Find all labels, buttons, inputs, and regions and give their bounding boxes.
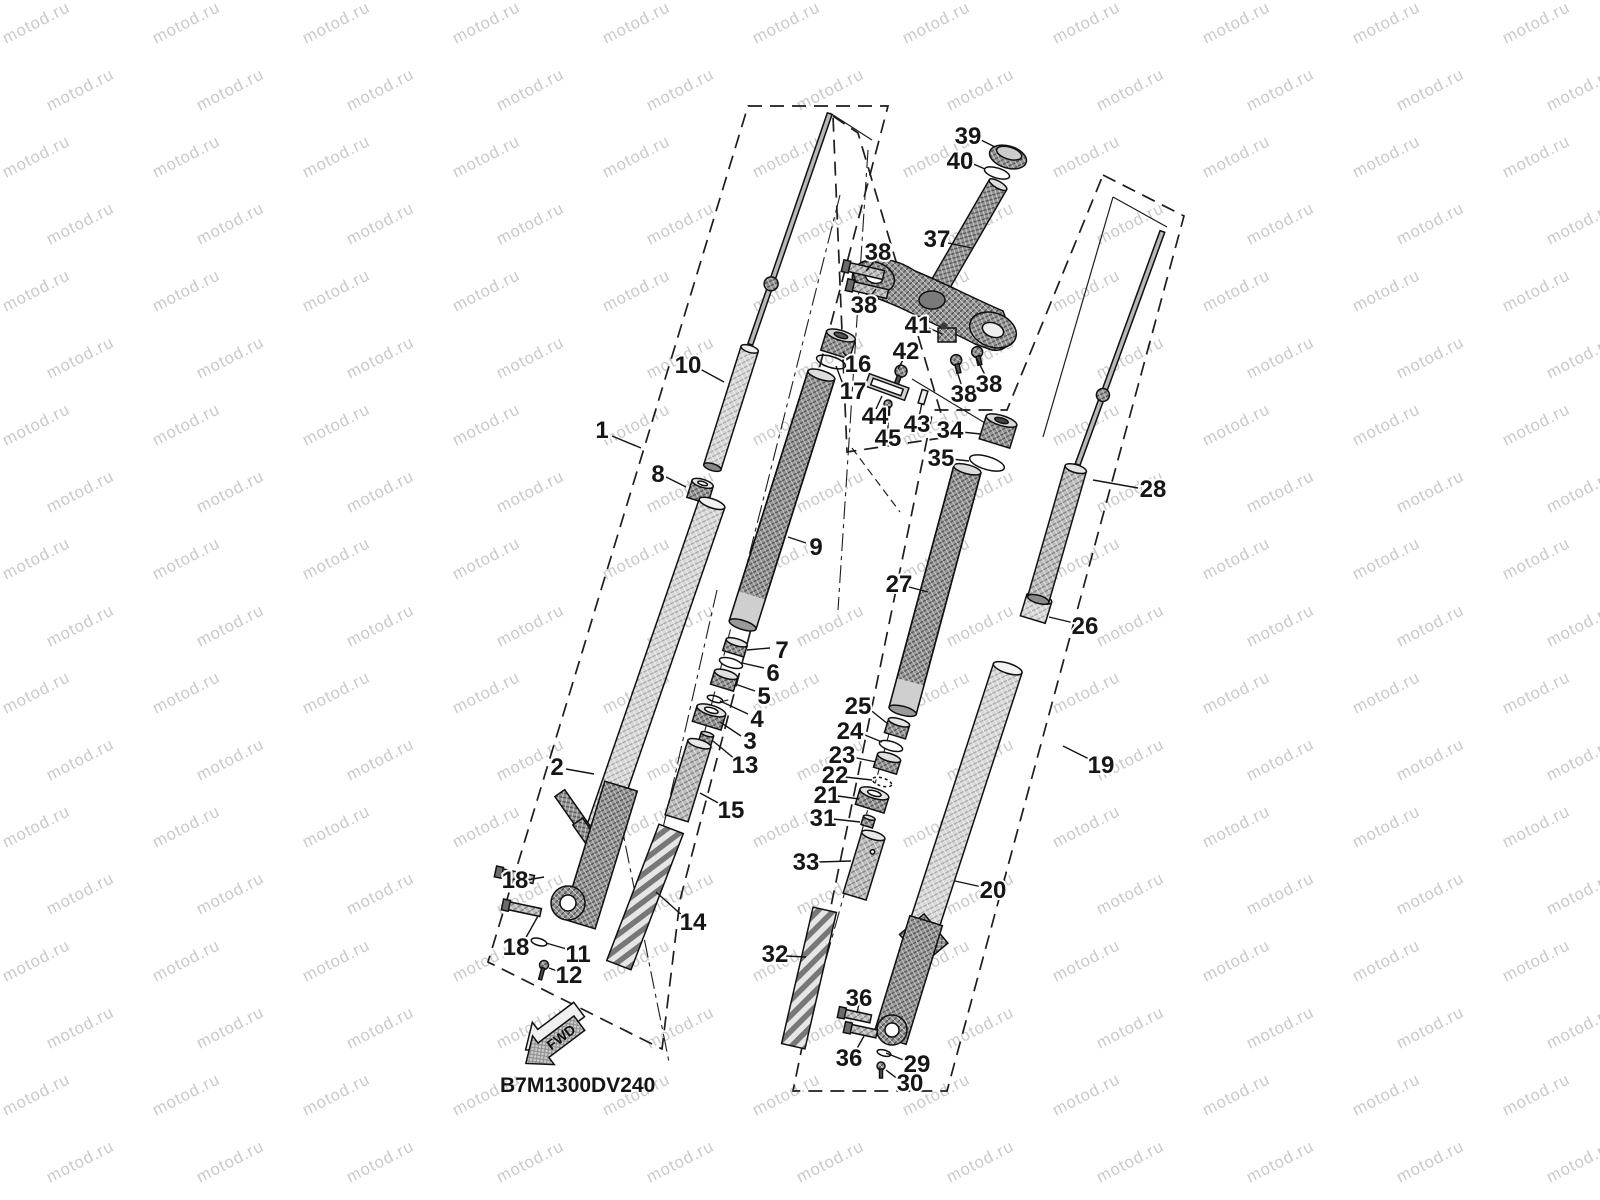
callout-7: 7 — [775, 637, 788, 664]
callout-36: 36 — [846, 985, 873, 1012]
callout-4: 4 — [750, 706, 764, 733]
callout-24: 24 — [837, 718, 864, 745]
callout-31: 31 — [810, 805, 837, 832]
callout-38: 38 — [851, 292, 878, 319]
callout-15: 15 — [718, 797, 745, 824]
callout-42: 42 — [893, 338, 920, 365]
callout-38: 38 — [951, 381, 978, 408]
callout-6: 6 — [766, 660, 779, 687]
fork-exploded-diagram: motod.ru motod.ru — [0, 0, 1600, 1200]
callout-14: 14 — [680, 909, 707, 936]
page: motod.ru motod.ru — [0, 0, 1600, 1200]
callout-2: 2 — [550, 754, 563, 781]
callout-45: 45 — [875, 425, 902, 452]
callout-36: 36 — [836, 1045, 863, 1072]
callout-20: 20 — [980, 877, 1007, 904]
callout-5: 5 — [757, 683, 770, 710]
callout-38: 38 — [865, 239, 892, 266]
callout-30: 30 — [897, 1070, 924, 1097]
callout-41: 41 — [905, 312, 932, 339]
callout-19: 19 — [1088, 752, 1115, 779]
callout-40: 40 — [947, 148, 974, 175]
callout-37: 37 — [924, 226, 951, 253]
callout-8: 8 — [651, 461, 664, 488]
callout-33: 33 — [793, 849, 820, 876]
callout-23: 23 — [829, 742, 856, 769]
callout-38: 38 — [976, 371, 1003, 398]
callout-12: 12 — [556, 962, 583, 989]
callout-9: 9 — [809, 534, 822, 561]
callout-10: 10 — [675, 352, 702, 379]
callout-32: 32 — [762, 941, 789, 968]
callout-18: 18 — [502, 867, 529, 894]
diagram-code: B7M1300DV240 — [500, 1074, 655, 1097]
callout-39: 39 — [955, 123, 982, 150]
callout-28: 28 — [1140, 476, 1167, 503]
callout-18: 18 — [503, 934, 530, 961]
callout-13: 13 — [732, 752, 759, 779]
callout-25: 25 — [845, 693, 872, 720]
callout-1: 1 — [595, 417, 608, 444]
callout-27: 27 — [886, 571, 913, 598]
callout-43: 43 — [904, 411, 931, 438]
callout-17: 17 — [840, 378, 867, 405]
callout-16: 16 — [845, 351, 872, 378]
callout-35: 35 — [928, 445, 955, 472]
callout-26: 26 — [1072, 613, 1099, 640]
callout-34: 34 — [937, 417, 964, 444]
